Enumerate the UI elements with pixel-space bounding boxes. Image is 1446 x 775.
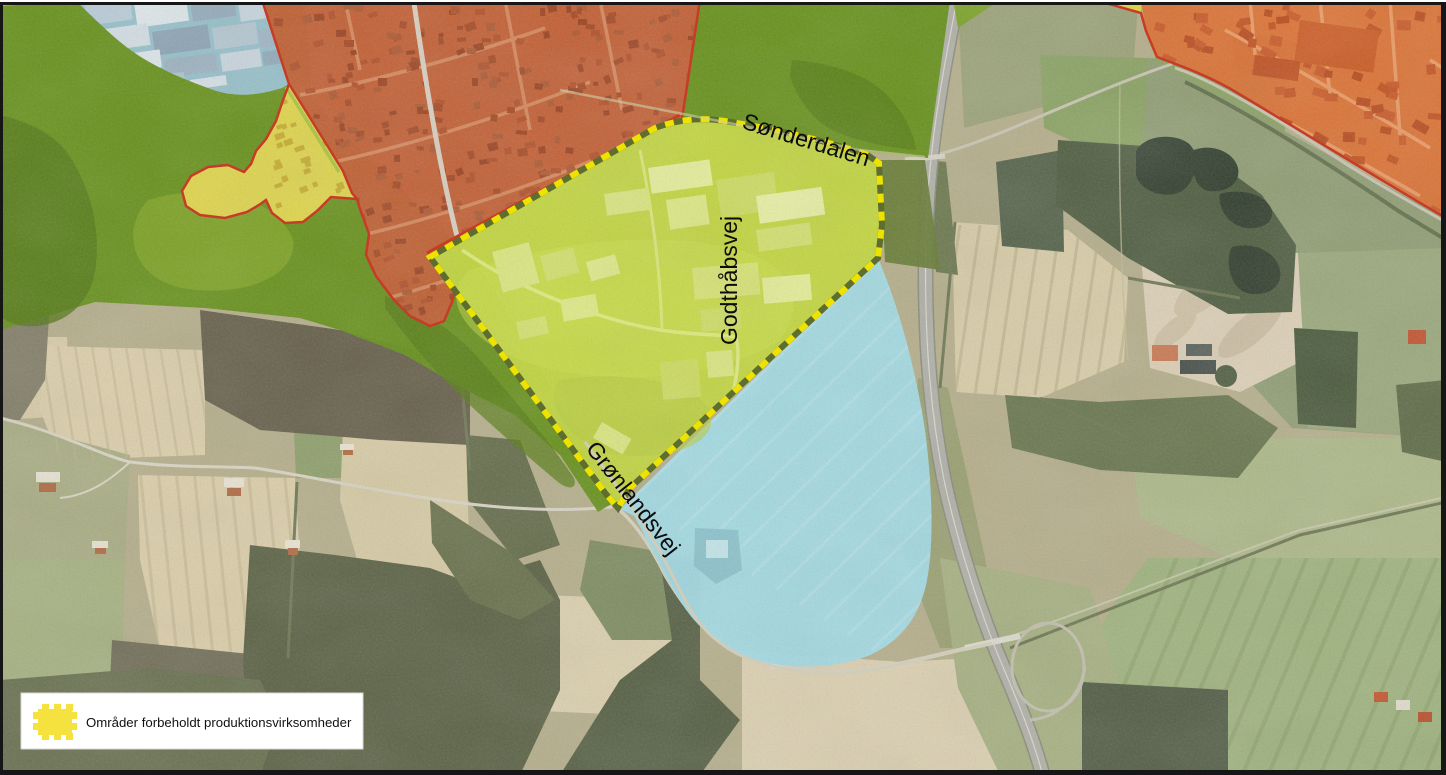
svg-text:Godthåbsvej: Godthåbsvej [716,216,742,345]
svg-text:Områder forbeholdt produktions: Områder forbeholdt produktionsvirksomhed… [86,715,352,730]
